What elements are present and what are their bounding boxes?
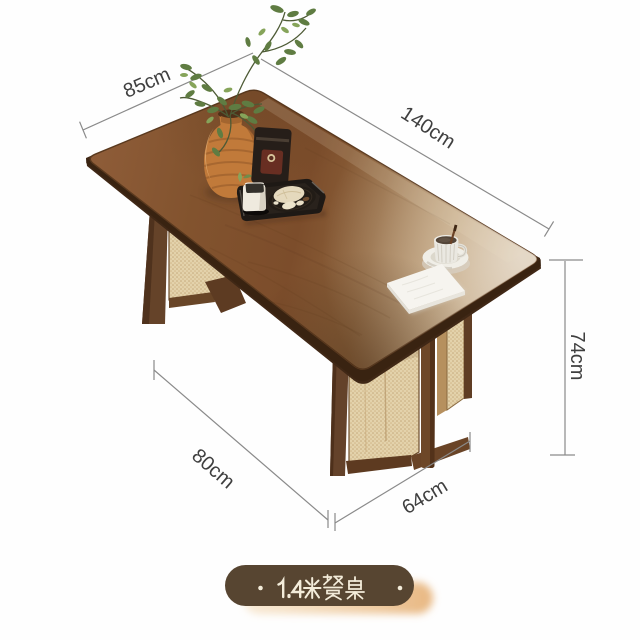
svg-text:74cm: 74cm — [566, 332, 588, 381]
